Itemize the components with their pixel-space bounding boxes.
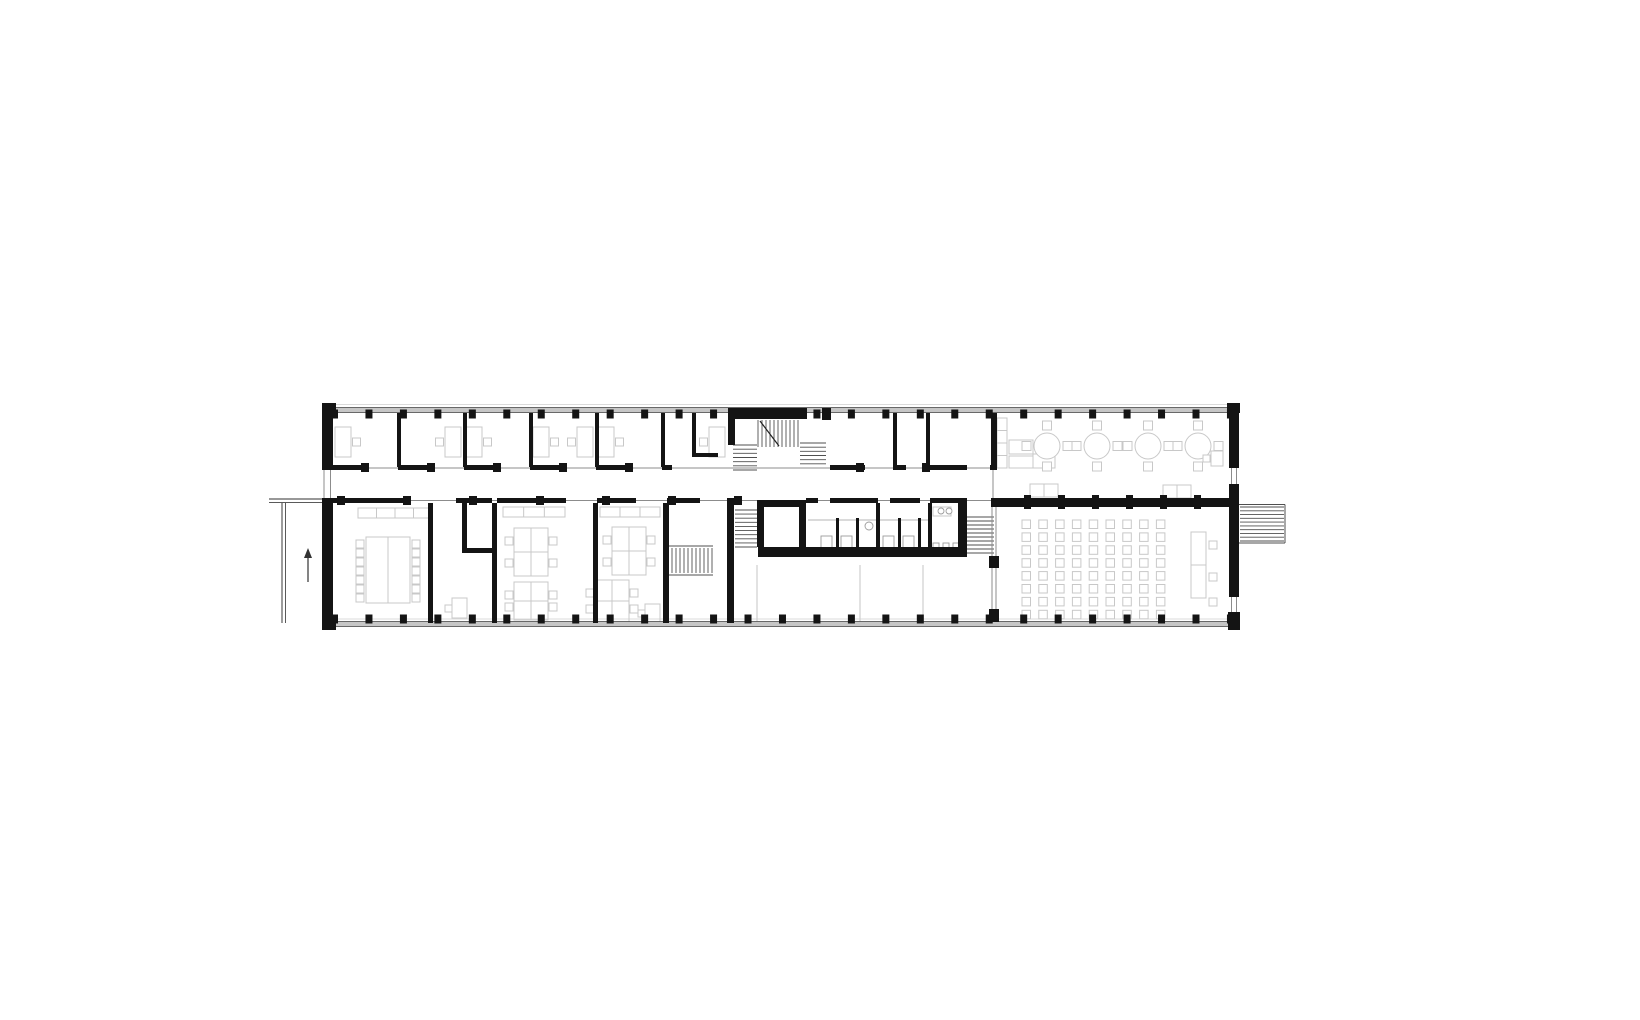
- north-arrow: [304, 548, 312, 582]
- floor-plan-drawing: Architectural floor plan — long two-bay …: [0, 0, 1640, 1020]
- furniture-layer: [335, 418, 1223, 623]
- floor-plan-canvas: Architectural floor plan — long two-bay …: [0, 0, 1640, 1020]
